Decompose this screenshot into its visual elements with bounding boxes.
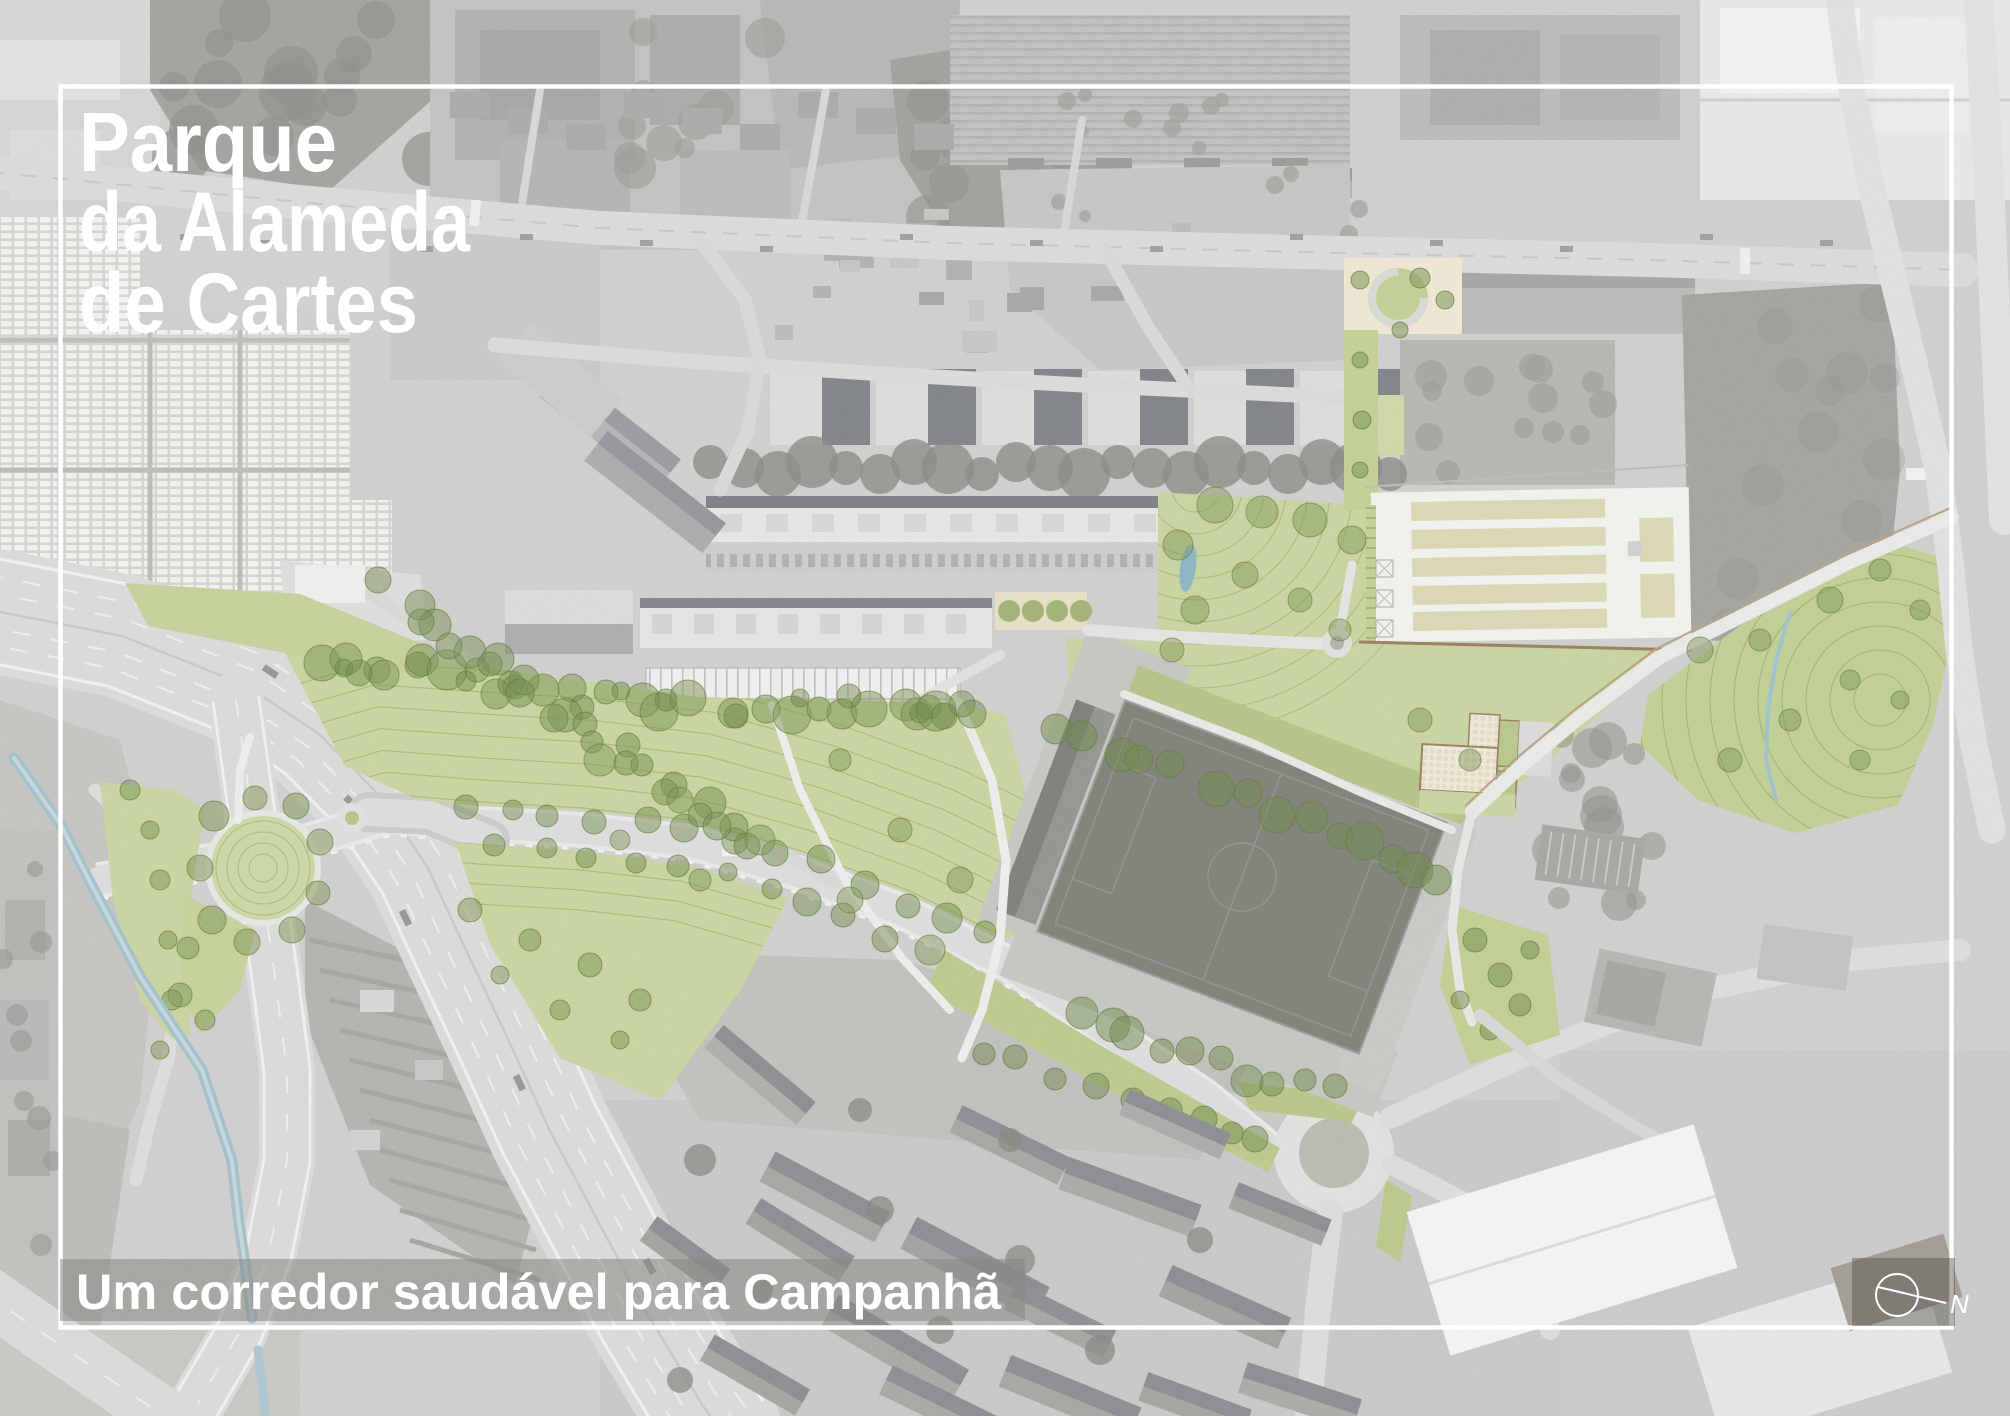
svg-text:Um corredor saudável para Camp: Um corredor saudável para Campanhã [76, 1264, 1001, 1320]
svg-text:N: N [1950, 1289, 1969, 1319]
svg-text:da Alameda: da Alameda [79, 175, 471, 269]
svg-text:de Cartes: de Cartes [79, 256, 418, 350]
